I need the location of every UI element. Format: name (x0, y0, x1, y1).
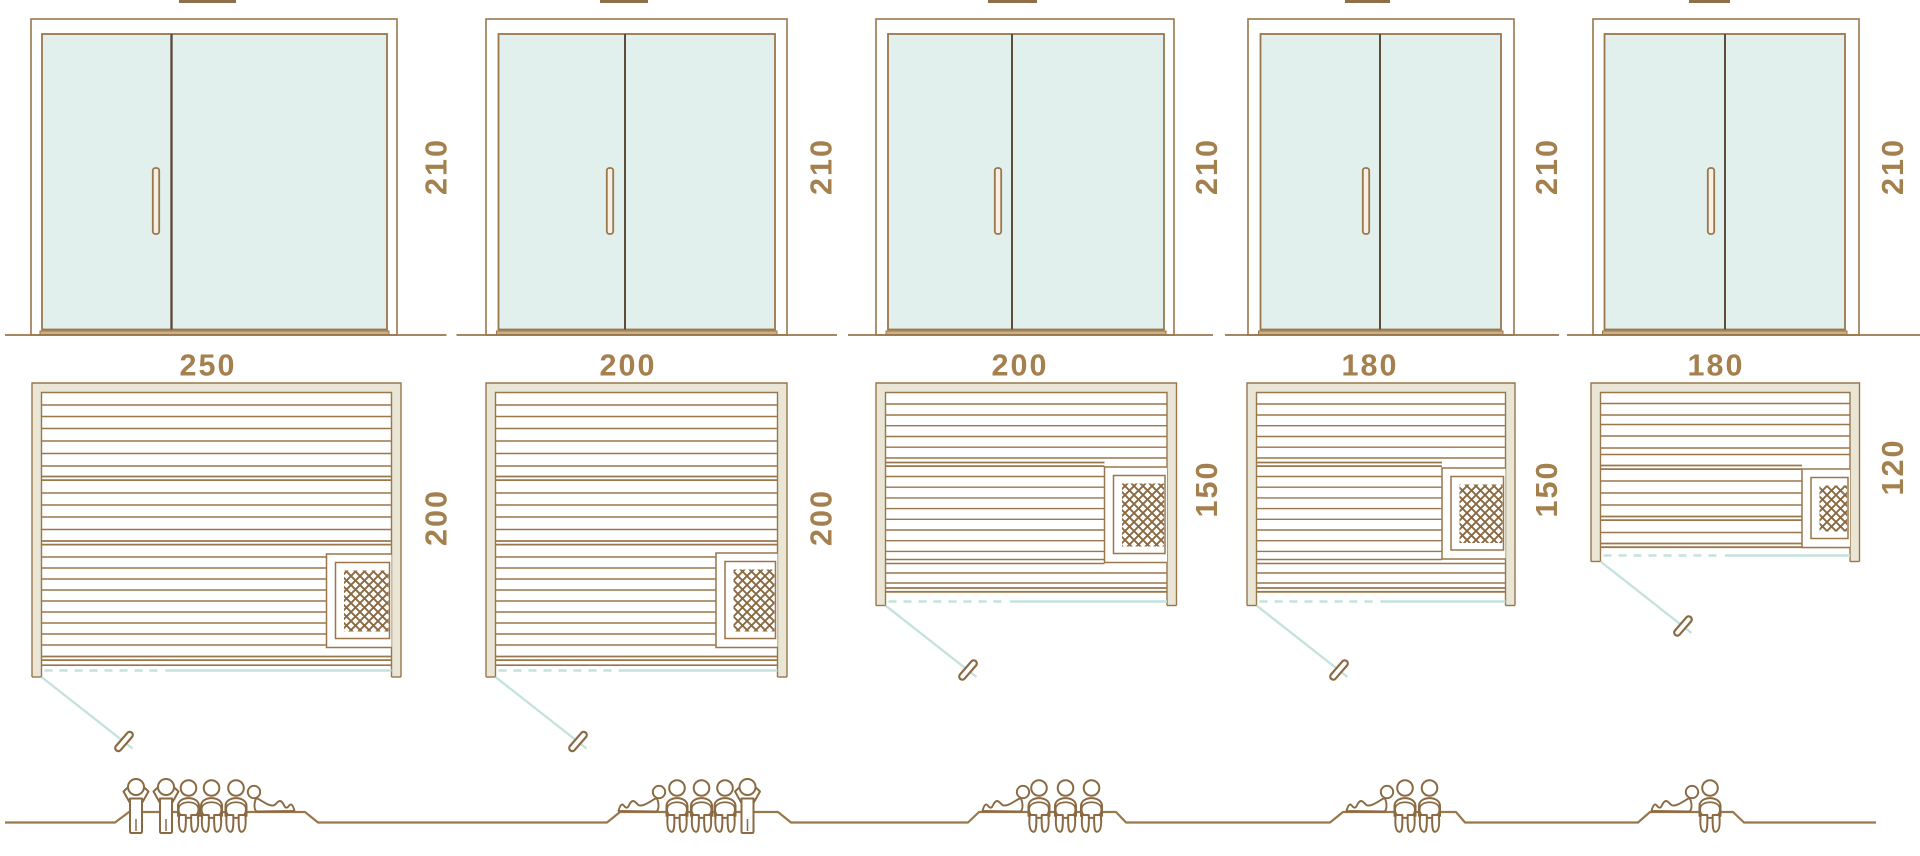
svg-text:210: 210 (1876, 138, 1910, 195)
svg-text:200: 200 (992, 349, 1049, 383)
svg-text:210: 210 (1190, 138, 1224, 195)
svg-text:210: 210 (1530, 138, 1564, 195)
svg-text:210: 210 (805, 138, 839, 195)
svg-text:150: 150 (1190, 461, 1224, 518)
svg-text:250: 250 (180, 349, 237, 383)
svg-text:210: 210 (420, 138, 454, 195)
svg-text:180: 180 (1688, 349, 1745, 383)
svg-text:200: 200 (600, 349, 657, 383)
svg-text:120: 120 (1876, 439, 1910, 496)
svg-text:200: 200 (420, 489, 454, 546)
svg-text:200: 200 (805, 489, 839, 546)
svg-text:180: 180 (1342, 349, 1399, 383)
svg-text:150: 150 (1530, 461, 1564, 518)
